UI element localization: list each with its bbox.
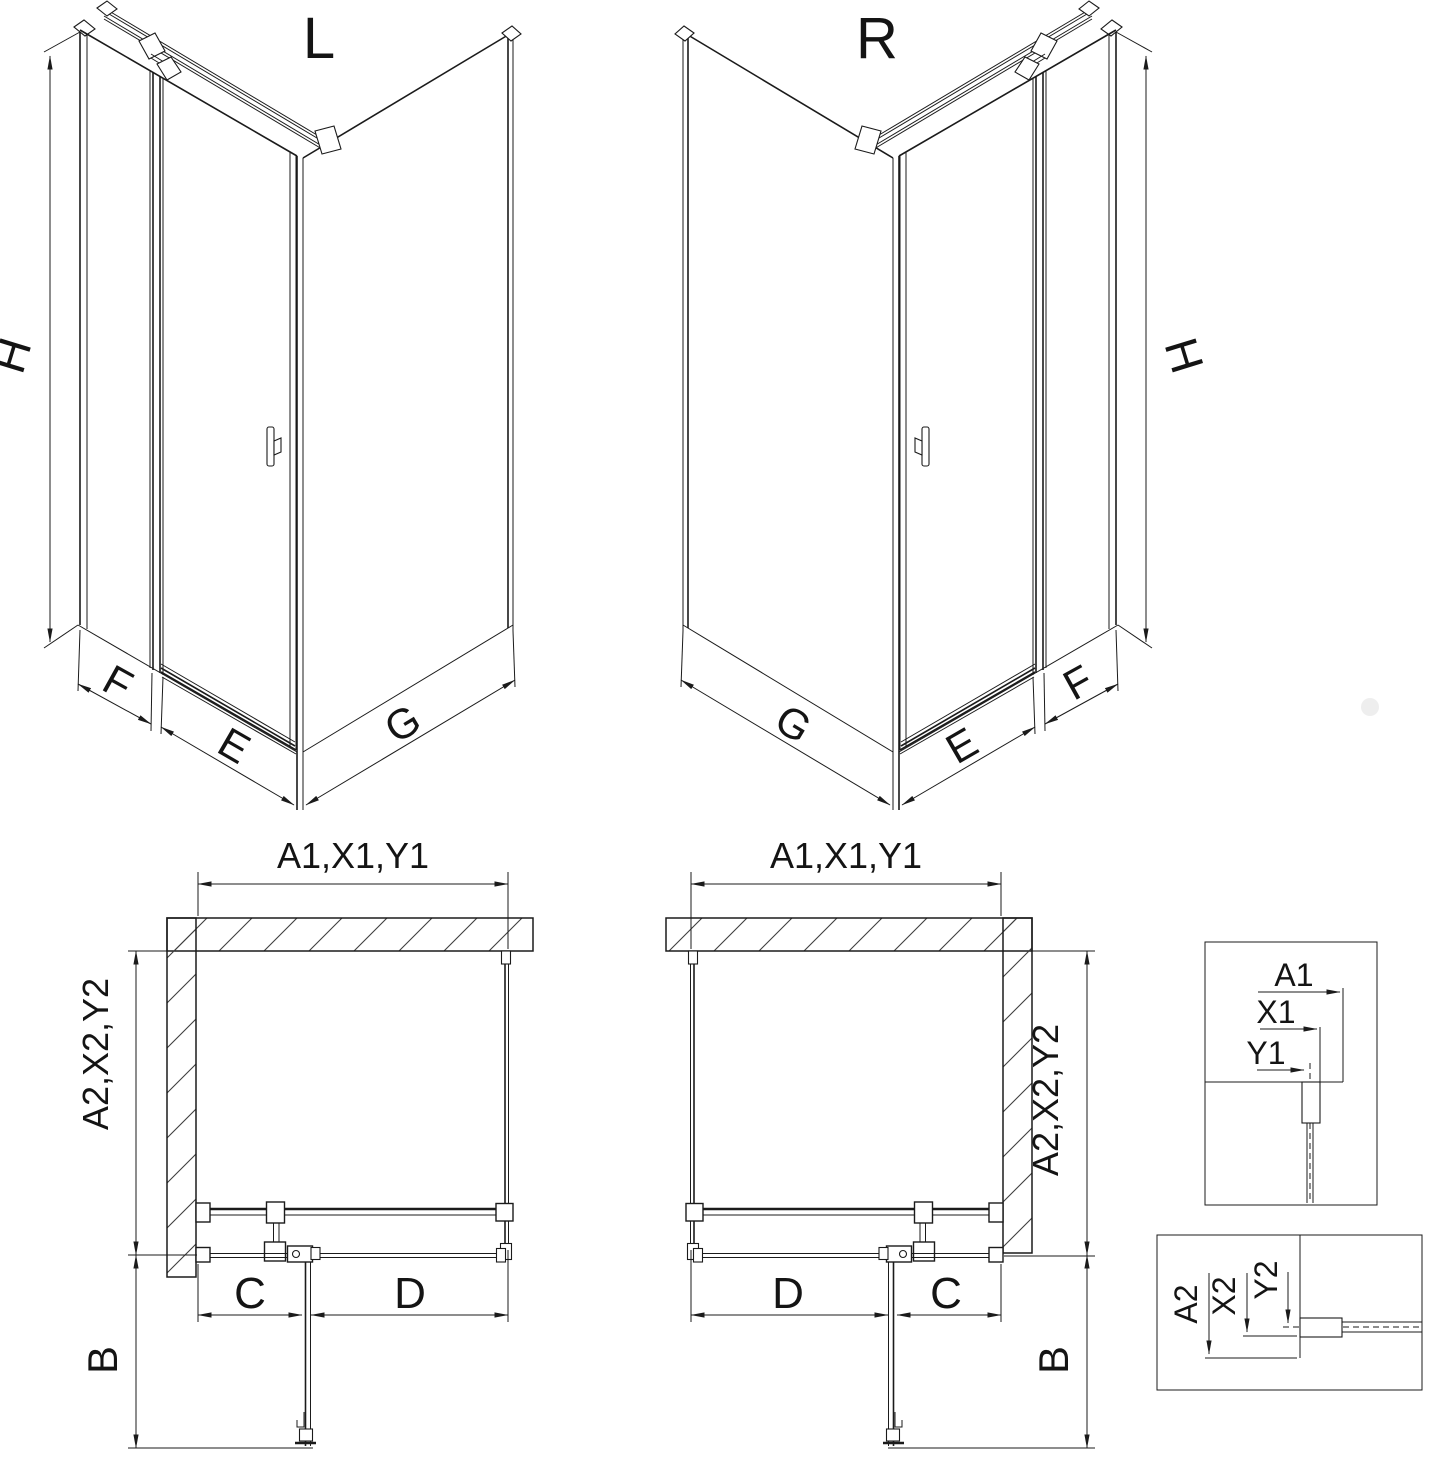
detail-depth-dim-a2-label: A2 <box>1168 1284 1204 1323</box>
plan-right-dim-depth-label: A2,X2,Y2 <box>1025 1024 1066 1176</box>
plan-view-right: A1,X1,Y1 A2,X2,Y2 B D C <box>666 835 1095 1448</box>
iso-right-dim-return-label: G <box>767 695 819 752</box>
plan-left-dim-depth-label: A2,X2,Y2 <box>75 978 116 1130</box>
plan-view-left: A1,X1,Y1 A2,X2,Y2 B C D <box>75 835 533 1448</box>
iso-view-left: L H F E G <box>0 1 521 810</box>
plan-left-dim-door-swing-label: B <box>79 1346 126 1374</box>
detail-width-dim-y1-label: Y1 <box>1246 1035 1285 1071</box>
plan-right-dim-width-label: A1,X1,Y1 <box>770 835 922 876</box>
iso-right-dim-door-label: E <box>938 718 986 773</box>
iso-view-right: R H F E G <box>675 1 1214 810</box>
iso-left-dim-return-label: G <box>376 695 428 752</box>
technical-drawing-page: L H F E G R H F E G A1,X1,Y1 A2,X2,Y2 B … <box>0 0 1430 1460</box>
plan-left-depth-dims <box>128 951 313 1448</box>
plan-left-dim-width-label: A1,X1,Y1 <box>277 835 429 876</box>
iso-left-version-label: L <box>303 6 335 71</box>
detail-width-dim-x1-label: X1 <box>1256 994 1295 1030</box>
plan-right-geometry <box>686 872 1003 1446</box>
plan-right-top-wall-hatch <box>666 918 1032 951</box>
iso-left-dim-side-label: F <box>95 656 140 710</box>
iso-left-dim-door-label: E <box>210 718 258 773</box>
iso-right-dim-side-label: F <box>1055 656 1100 710</box>
plan-right-dim-door-swing-label: B <box>1030 1346 1077 1374</box>
plan-right-dim-panel-label: D <box>772 1269 804 1318</box>
iso-left-dim-height-label: H <box>0 332 41 379</box>
detail-depth-box: A2 X2 Y2 <box>1157 1235 1422 1390</box>
plan-left-side-wall-hatch <box>167 918 196 1277</box>
plan-left-top-wall-hatch <box>167 918 533 951</box>
plan-left-dim-fixed-label: C <box>234 1269 266 1318</box>
detail-width-dim-a1-label: A1 <box>1274 957 1313 993</box>
iso-right-version-label: R <box>856 6 898 71</box>
detail-depth-dim-x2-label: X2 <box>1206 1276 1242 1315</box>
plan-left-dim-panel-label: D <box>394 1269 426 1318</box>
detail-width-box: A1 X1 Y1 <box>1205 942 1377 1205</box>
shower-enclosure-drawing: L H F E G R H F E G A1,X1,Y1 A2,X2,Y2 B … <box>0 0 1430 1460</box>
plan-right-dim-fixed-label: C <box>930 1269 962 1318</box>
watermark-dot <box>1361 698 1379 716</box>
plan-left-geometry <box>196 872 513 1446</box>
detail-depth-dim-y2-label: Y2 <box>1248 1260 1284 1299</box>
iso-right-dim-height-label: H <box>1155 332 1214 379</box>
